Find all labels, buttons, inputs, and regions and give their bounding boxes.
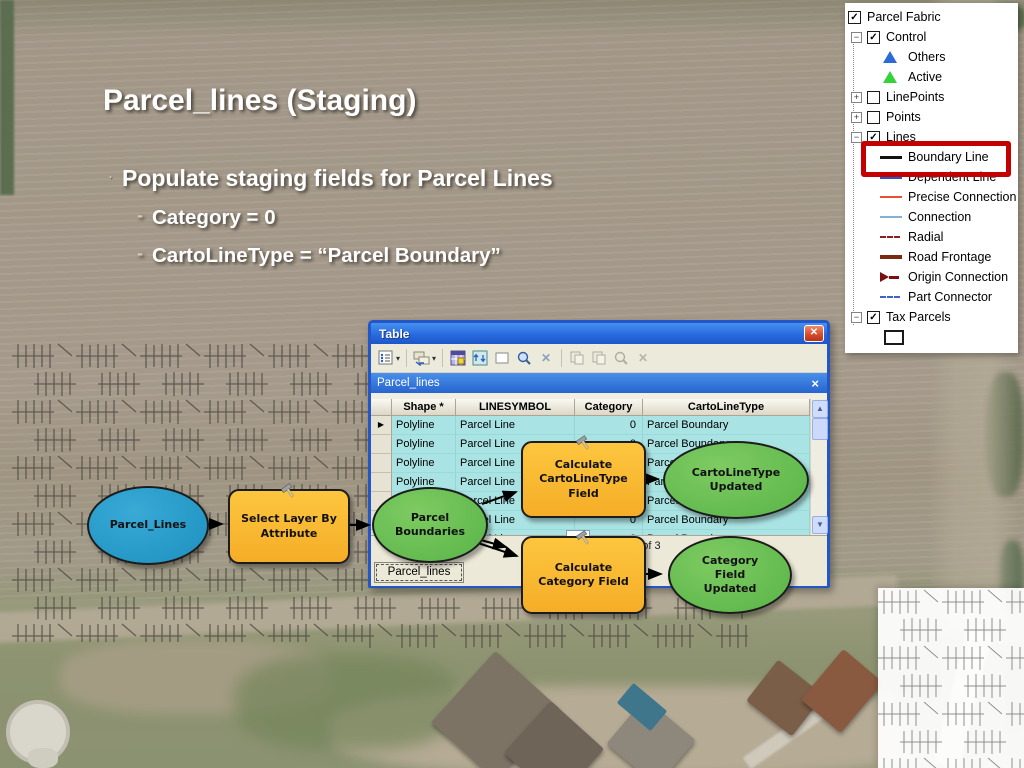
row-selector[interactable] (371, 473, 392, 492)
bullet-marker: · (109, 172, 113, 184)
node-label: Parcel Boundaries (374, 511, 486, 540)
bottom-tab-parcel-lines[interactable]: Parcel_lines (374, 562, 464, 583)
collapse-icon[interactable]: − (851, 312, 862, 323)
model-node-category-field-updated[interactable]: Category Field Updated (668, 536, 792, 614)
hammer-icon (575, 529, 593, 545)
toolbar-separator (561, 349, 562, 367)
model-tool-calculate-category-field[interactable]: Calculate Category Field (521, 536, 646, 614)
tab-parcel-lines[interactable]: Parcel_lines (377, 377, 811, 389)
checkbox-checked[interactable]: ✓ (867, 311, 880, 324)
toolbar-separator (406, 349, 407, 367)
switch-selection-icon[interactable] (470, 349, 490, 367)
tab-close-icon[interactable]: × (811, 376, 819, 391)
sub-bullet-text: Category = 0 (152, 206, 276, 230)
slide-canvas: Parcel_lines (Staging) · Populate stagin… (0, 0, 1024, 768)
maroon-line-symbol (880, 255, 904, 259)
checkbox-checked[interactable]: ✓ (867, 31, 880, 44)
node-label: Calculate Category Field (523, 561, 644, 590)
window-title: Table (379, 327, 804, 341)
cell-shape[interactable]: Polyline (392, 416, 456, 435)
table-toolbar: ▾ ▾ ✕ (371, 344, 827, 373)
arrow-symbol (880, 272, 904, 282)
water-tank (28, 748, 58, 768)
hammer-icon (280, 482, 298, 498)
blue-triangle-symbol (880, 51, 904, 63)
bullet-text: Populate staging fields for Parcel Lines (122, 165, 553, 192)
hammer-icon (575, 434, 593, 450)
zoom-to-selected-icon[interactable] (514, 349, 534, 367)
close-button[interactable]: ✕ (804, 325, 824, 342)
legend-item-active: Active (845, 67, 942, 87)
legend-item-tax-parcel-symbol (845, 327, 904, 347)
legend-label: LinePoints (886, 90, 944, 104)
column-header[interactable]: LINESYMBOL (456, 399, 575, 416)
layer-legend-panel: ✓ Parcel Fabric − ✓ Control Others Activ… (845, 3, 1018, 353)
legend-label: Parcel Fabric (867, 10, 941, 24)
dashdot-line-symbol (880, 296, 904, 298)
collapse-icon[interactable]: − (851, 32, 862, 43)
delete-icon-disabled: ✕ (633, 349, 653, 367)
page-title: Parcel_lines (Staging) (103, 84, 416, 118)
checkbox-unchecked[interactable] (867, 91, 880, 104)
legend-label: Road Frontage (908, 250, 991, 264)
legend-item-control[interactable]: − ✓ Control (848, 27, 926, 47)
header-selector (371, 399, 392, 416)
paste-icon-disabled (589, 349, 609, 367)
select-by-attributes-icon[interactable] (448, 349, 468, 367)
legend-label: Control (886, 30, 926, 44)
model-tool-calculate-cartolinetype-field[interactable]: Calculate CartoLineType Field (521, 441, 646, 518)
legend-label: Active (908, 70, 942, 84)
boundary-line-highlight-box (861, 141, 1011, 177)
model-node-cartolinetype-updated[interactable]: CartoLineType Updated (663, 441, 809, 519)
model-node-parcel-boundaries[interactable]: Parcel Boundaries (372, 487, 488, 563)
current-row-marker[interactable]: ▶ (371, 416, 392, 435)
expand-icon[interactable]: + (851, 112, 862, 123)
legend-label: Connection (908, 210, 971, 224)
node-label: Category Field Updated (670, 554, 790, 597)
collapse-icon[interactable]: − (851, 132, 862, 143)
dropdown-caret-icon[interactable]: ▾ (396, 354, 400, 363)
legend-label: Part Connector (908, 290, 992, 304)
cell-shape[interactable]: Polyline (392, 454, 456, 473)
table-tab-bar: Parcel_lines × (371, 373, 827, 393)
legend-item-points[interactable]: + Points (848, 107, 921, 127)
cell-category[interactable]: 0 (575, 416, 643, 435)
cell-cartolinetype[interactable]: Parcel Boundary (643, 416, 810, 435)
model-tool-select-layer-by-attribute[interactable]: Select Layer By Attribute (228, 489, 350, 564)
sub-bullet-marker: - (137, 205, 143, 226)
legend-item-origin-connection: Origin Connection (845, 267, 1008, 287)
expand-icon[interactable]: + (851, 92, 862, 103)
treeline (0, 0, 14, 195)
table-row[interactable]: ▶ Polyline Parcel Line 0 Parcel Boundary (371, 416, 810, 435)
delete-selected-icon[interactable]: ✕ (536, 349, 556, 367)
dropdown-caret-icon[interactable]: ▾ (432, 354, 436, 363)
scroll-up-icon[interactable]: ▲ (812, 400, 828, 418)
green-triangle-symbol (880, 71, 904, 83)
table-options-icon[interactable] (376, 349, 396, 367)
node-label: Select Layer By Attribute (230, 512, 348, 541)
legend-label: Origin Connection (908, 270, 1008, 284)
column-header[interactable]: CartoLineType (643, 399, 810, 416)
legend-label: Tax Parcels (886, 310, 951, 324)
grid-header-row: Shape * LINESYMBOL Category CartoLineTyp… (371, 399, 827, 416)
zoom-icon-disabled (611, 349, 631, 367)
sub-bullet-text: CartoLineType = “Parcel Boundary” (152, 244, 501, 268)
legend-item-linepoints[interactable]: + LinePoints (848, 87, 944, 107)
legend-item-tax-parcels[interactable]: − ✓ Tax Parcels (848, 307, 951, 327)
checkbox-unchecked[interactable] (867, 111, 880, 124)
node-label: CartoLineType Updated (665, 466, 807, 495)
legend-item-precise-connection: Precise Connection (845, 187, 1016, 207)
node-label: Parcel_Lines (110, 518, 186, 532)
sub-bullet-marker: - (137, 243, 143, 264)
legend-label: Radial (908, 230, 943, 244)
hollow-rectangle-symbol (884, 330, 904, 345)
legend-item-parcel-fabric[interactable]: ✓ Parcel Fabric (848, 7, 941, 27)
legend-item-others: Others (845, 47, 946, 67)
orange-line-symbol (880, 196, 904, 198)
vertical-scrollbar[interactable]: ▲ ▼ (810, 399, 827, 535)
row-selector[interactable] (371, 454, 392, 473)
legend-item-part-connector: Part Connector (845, 287, 992, 307)
scroll-down-icon[interactable]: ▼ (812, 516, 828, 534)
legend-item-connection: Connection (845, 207, 971, 227)
column-header[interactable]: Category (575, 399, 643, 416)
column-header[interactable]: Shape * (392, 399, 456, 416)
checkbox-checked[interactable]: ✓ (848, 11, 861, 24)
node-label: Calculate CartoLineType Field (523, 458, 644, 501)
table-window-titlebar[interactable]: Table ✕ (371, 323, 827, 344)
legend-label: Precise Connection (908, 190, 1016, 204)
dashed-line-symbol (880, 236, 904, 238)
related-tables-icon[interactable] (412, 349, 432, 367)
clear-selection-icon[interactable] (492, 349, 512, 367)
legend-label: Points (886, 110, 921, 124)
toolbar-separator (442, 349, 443, 367)
scrollbar-thumb[interactable] (812, 418, 828, 440)
copy-icon-disabled (567, 349, 587, 367)
row-selector[interactable] (371, 435, 392, 454)
model-node-parcel-lines[interactable]: Parcel_Lines (87, 486, 209, 565)
plat-map-inset (878, 588, 1024, 768)
lightblue-line-symbol (880, 216, 904, 218)
legend-item-radial: Radial (845, 227, 943, 247)
grass-patch (235, 655, 460, 750)
legend-item-road-frontage: Road Frontage (845, 247, 991, 267)
cell-linesymbol[interactable]: Parcel Line (456, 416, 575, 435)
legend-label: Others (908, 50, 946, 64)
cell-shape[interactable]: Polyline (392, 435, 456, 454)
